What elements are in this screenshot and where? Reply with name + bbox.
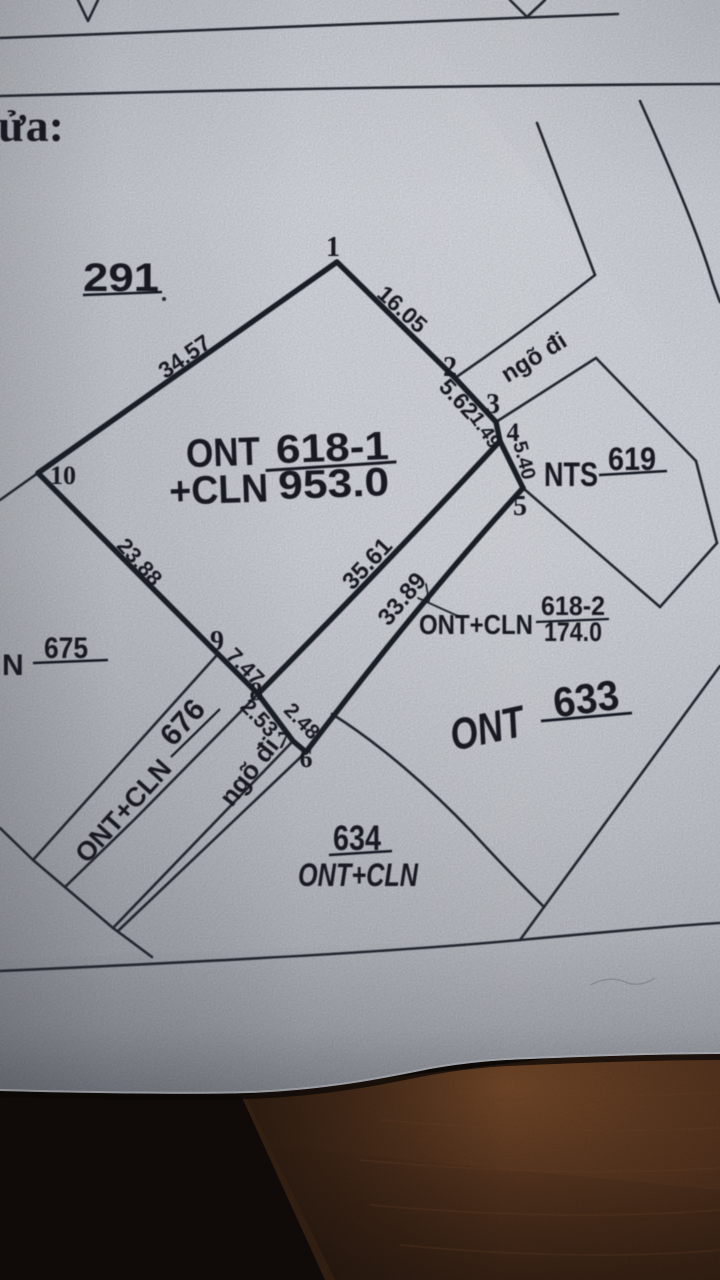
svg-text:174.0: 174.0 [544,617,602,647]
svg-text:1: 1 [326,232,340,263]
svg-text:NTS: NTS [544,456,598,494]
svg-text:6: 6 [300,744,313,773]
svg-text:5: 5 [513,491,527,522]
svg-text:9: 9 [210,626,224,657]
svg-text:ONT+CLN: ONT+CLN [298,857,419,893]
svg-text:953.0: 953.0 [277,460,389,508]
svg-text:ửa:: ửa: [0,100,64,151]
svg-text:N: N [2,649,24,682]
svg-text:10: 10 [50,461,76,490]
svg-text:ONT+CLN: ONT+CLN [419,609,533,640]
svg-text:+CLN: +CLN [169,466,269,513]
